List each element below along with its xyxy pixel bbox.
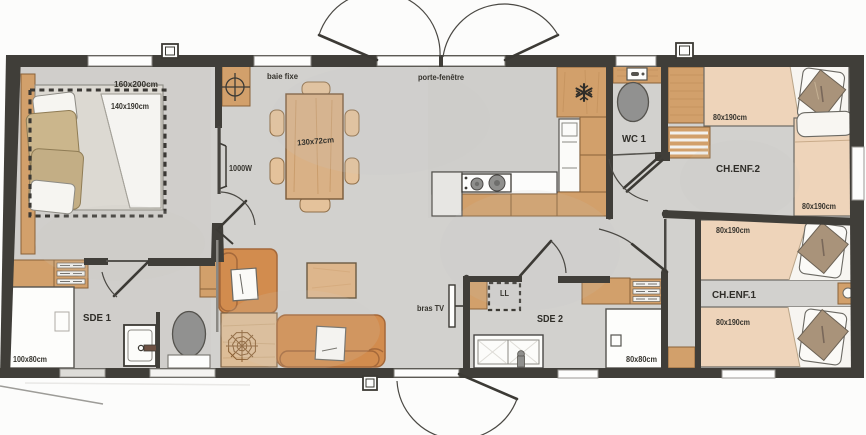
svg-text:80x190cm: 80x190cm <box>716 226 750 235</box>
svg-text:LL: LL <box>500 289 509 298</box>
svg-text:porte-fenêtre: porte-fenêtre <box>418 73 465 82</box>
svg-text:80x190cm: 80x190cm <box>802 202 836 211</box>
svg-text:1000W: 1000W <box>229 164 252 173</box>
svg-text:100x80cm: 100x80cm <box>13 355 47 364</box>
svg-text:CH.ENF.2: CH.ENF.2 <box>716 163 760 175</box>
svg-text:baie fixe: baie fixe <box>267 72 299 81</box>
svg-text:80x190cm: 80x190cm <box>716 318 750 327</box>
svg-text:bras TV: bras TV <box>417 304 445 313</box>
svg-text:160x200cm: 160x200cm <box>114 80 158 89</box>
svg-text:CH.ENF.1: CH.ENF.1 <box>712 289 756 301</box>
svg-text:SDE 2: SDE 2 <box>537 313 563 325</box>
svg-text:140x190cm: 140x190cm <box>111 102 149 111</box>
svg-text:SDE 1: SDE 1 <box>83 312 111 324</box>
svg-text:80x190cm: 80x190cm <box>713 113 747 122</box>
svg-text:80x80cm: 80x80cm <box>626 355 657 364</box>
svg-text:WC 1: WC 1 <box>622 133 646 145</box>
